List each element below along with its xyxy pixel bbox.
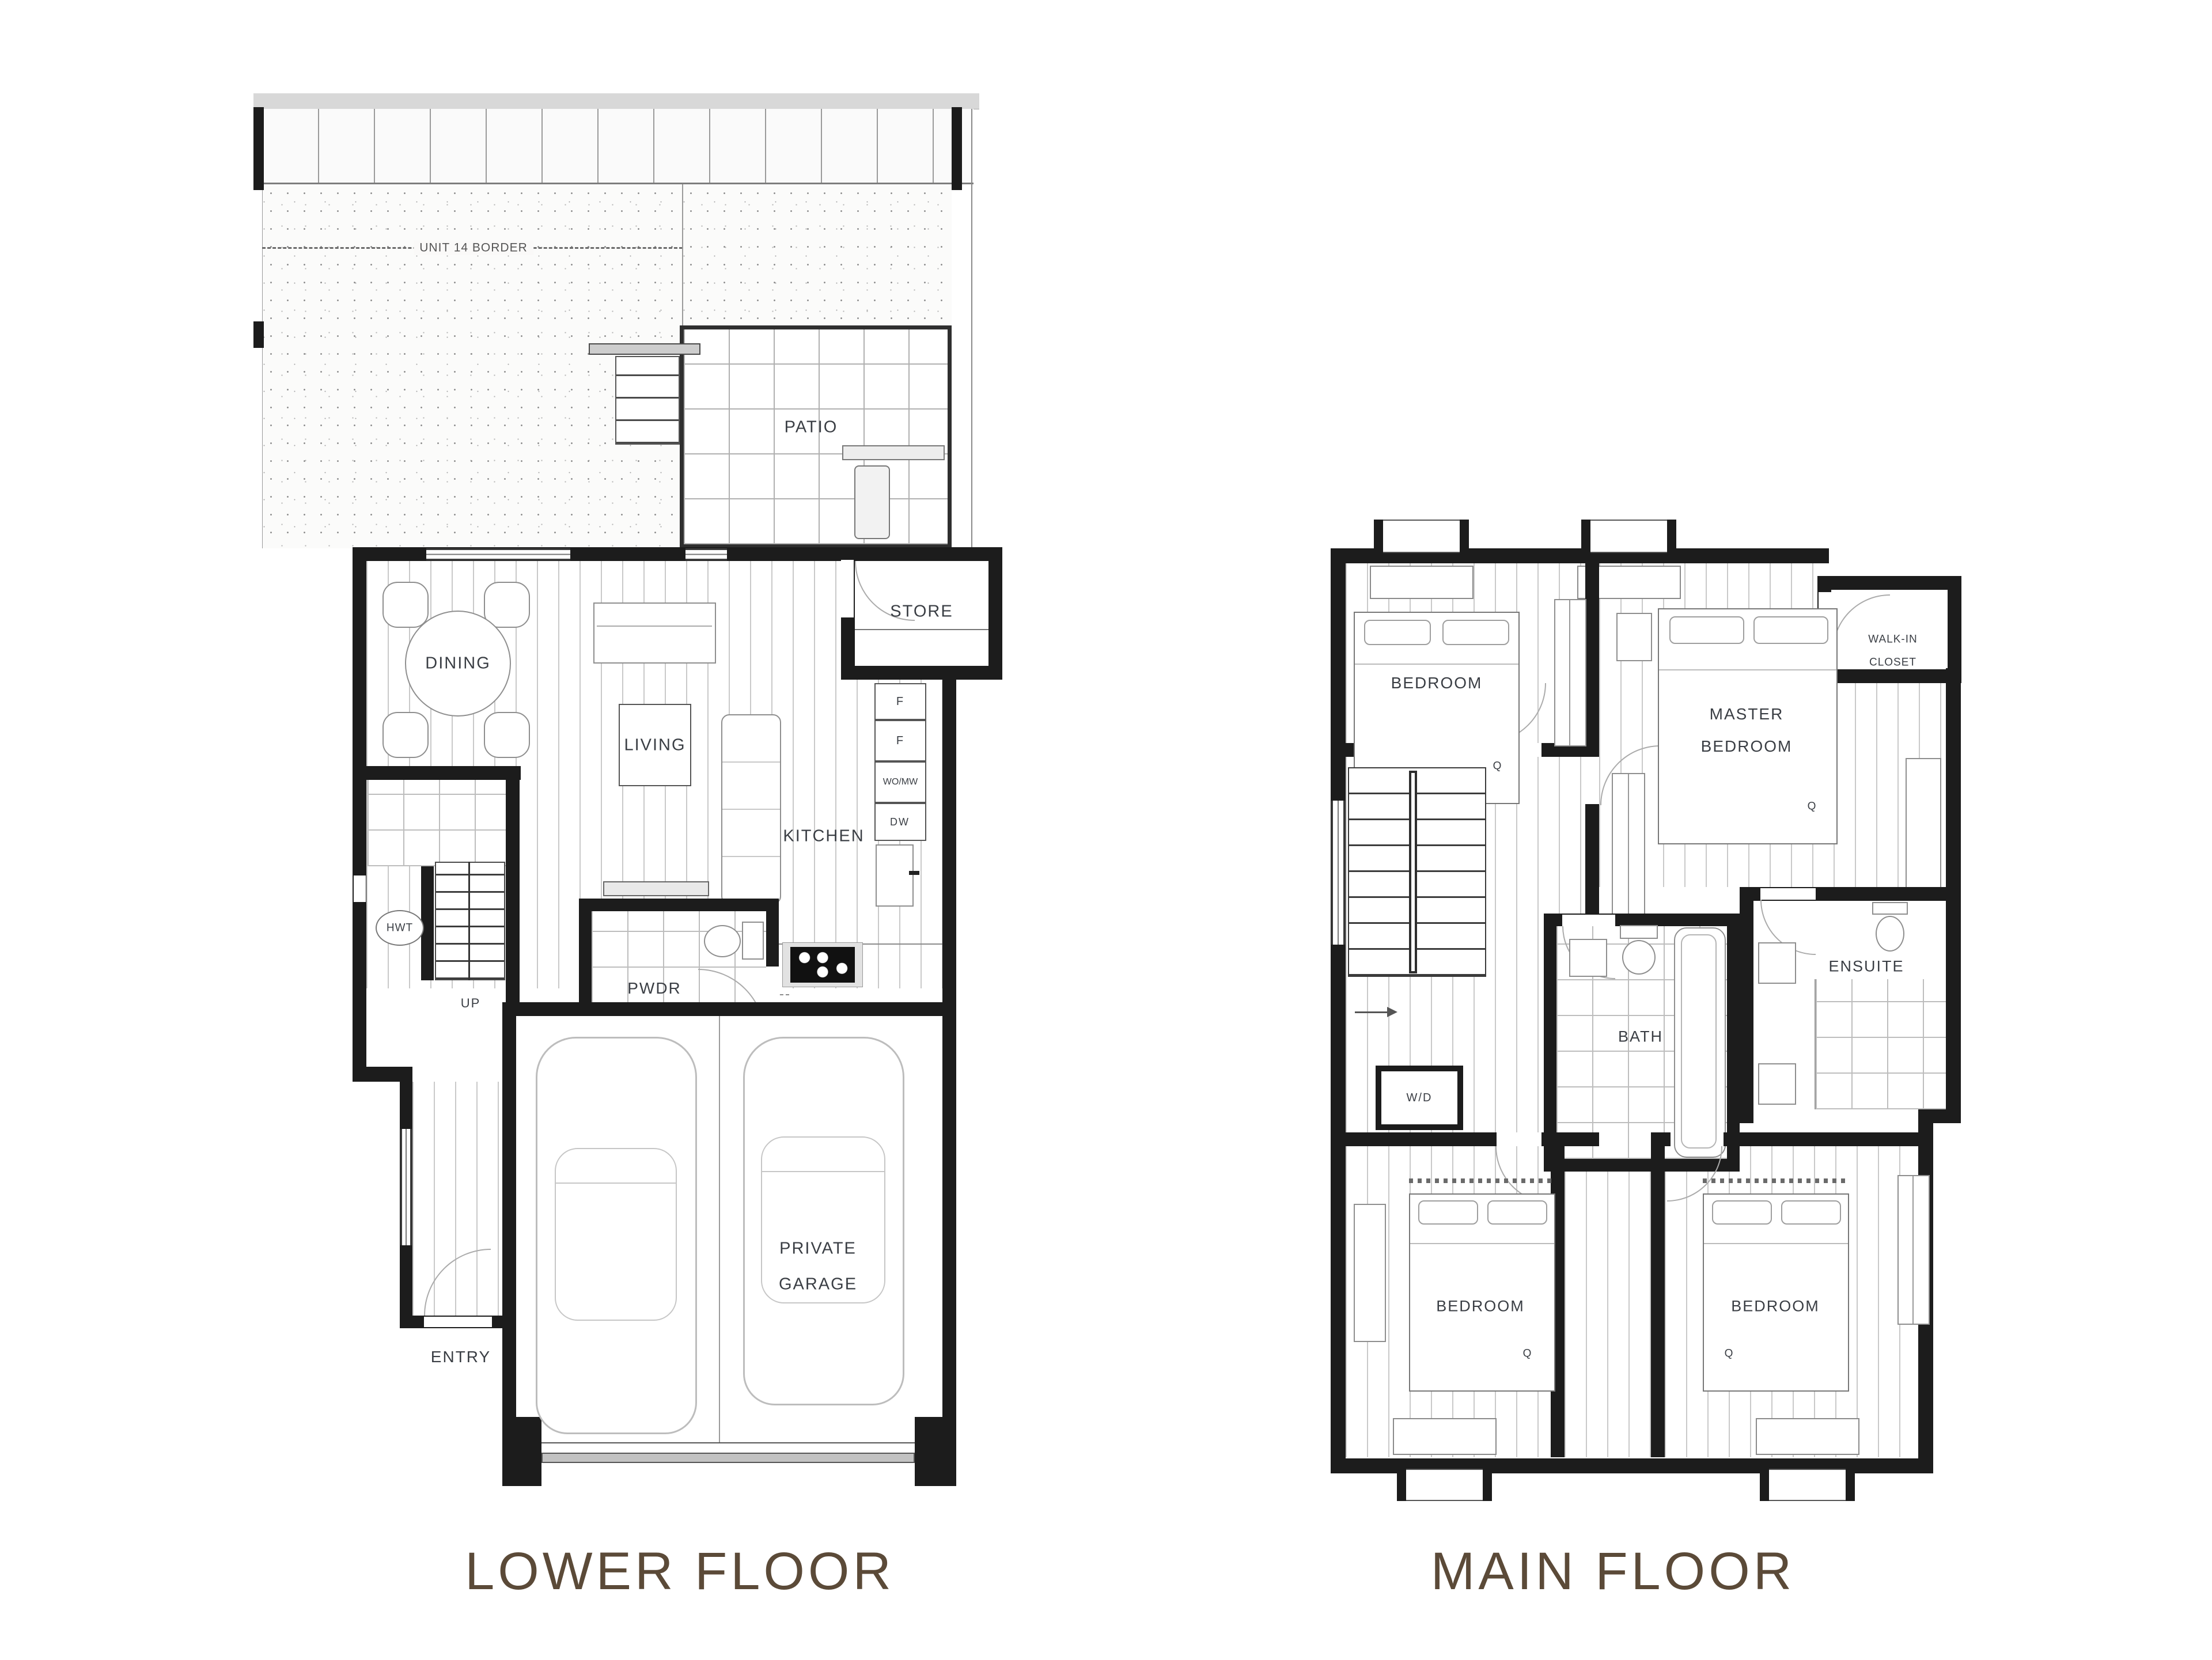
window-bay [1581,520,1676,553]
bath-sink [1569,939,1607,977]
wall-segment [253,107,264,190]
room-label-living: LIVING [624,737,685,754]
dining-chair [484,712,530,758]
kitchen-sink [876,844,914,907]
kitchen-island [603,881,709,896]
room-label-wic-line2: CLOSET [1869,657,1916,668]
room-label-master-line1: MASTER [1710,706,1784,722]
garage-bay-divider [719,1016,720,1442]
room-label-bedroom-br: BEDROOM [1731,1299,1820,1314]
door-opening [354,876,366,902]
stairs-up [435,862,505,980]
wall-segment [502,1417,541,1486]
erase-patch [1829,545,1961,577]
headboard-dotted [1703,1178,1849,1183]
window-bay [1374,520,1469,553]
closet [1612,773,1645,918]
entry-door-opening [424,1317,492,1327]
room-label-store: STORE [890,604,953,620]
tv-console-line [597,626,712,627]
tv-console [593,602,716,664]
bay-side [1846,1469,1855,1501]
wall-segment [1585,804,1599,914]
room-label-bedroom-bl: BEDROOM [1436,1299,1525,1314]
lower-floor-title: LOWER FLOOR [465,1541,895,1602]
bathtub [1674,927,1726,1158]
toilet-bowl [704,925,741,957]
room-label-master-line2: BEDROOM [1701,738,1793,755]
room-label-patio: PATIO [785,419,838,436]
label-dishwasher: DW [890,817,910,827]
dining-chair [382,582,429,628]
sofa [721,714,781,904]
label-wall-oven-microwave: WO/MW [883,778,918,787]
floor-plan-canvas: UNIT 14 BORDER PATIO STORE DINING [0,0,2212,1660]
label-up: UP [461,997,481,1010]
window [426,548,570,560]
bay-side [1483,1469,1492,1501]
wall-segment [1651,1132,1671,1146]
bed [1409,1193,1555,1392]
wall-segment [1541,1132,1599,1146]
window [400,1129,412,1245]
bay-side [1760,1469,1769,1501]
bed-size-q: Q [1725,1348,1734,1359]
room-label-dining: DINING [425,655,491,672]
stair-rail-inner [1411,773,1415,971]
car [743,1037,904,1405]
stair-arrow-line [1355,1011,1388,1013]
garage-opening-line [541,1442,915,1443]
room-label-powder: PWDR [627,980,681,996]
door-opening [841,560,854,617]
bay-side [1581,520,1590,553]
bed-size-q: Q [1523,1348,1533,1359]
window-bay [1397,1469,1492,1501]
toilet-tank [1872,902,1908,915]
room-label-entry: ENTRY [431,1349,491,1365]
headboard-dotted [1409,1178,1555,1183]
closet [1897,1175,1930,1325]
wall-segment [1740,887,1753,1123]
stairs-main [1348,767,1486,977]
wall-segment [952,107,962,190]
store-shelf-line [855,629,988,630]
car [536,1037,697,1434]
window-seat [1370,566,1474,599]
sink-faucet [909,871,919,875]
ensuite-shower-floor [1815,979,1946,1109]
bay-side [1667,520,1676,553]
bed-size-q: Q [1493,761,1503,772]
wall-segment [915,1417,956,1486]
dresser [1906,758,1941,888]
ensuite-sink [1758,942,1796,984]
car-line [555,1183,677,1184]
bay-side [1397,1469,1406,1501]
bay-side [1460,520,1469,553]
label-washer-dryer: W/D [1407,1092,1433,1104]
stair-arrow-head [1387,1007,1397,1017]
door-opening [1760,888,1816,900]
nightstand [1616,613,1652,661]
cooktop [790,947,855,983]
wall-segment [253,321,264,348]
door-opening [1562,915,1615,926]
wall-segment [1585,563,1599,744]
dining-chair [382,712,429,758]
room-label-ensuite: ENSUITE [1828,959,1904,975]
label-fridge-2: F [896,735,904,746]
main-floor-title: MAIN FLOOR [1431,1541,1795,1602]
site-boundary-line [971,109,972,548]
window [685,548,727,560]
room-label-garage-line1: PRIVATE [779,1241,857,1257]
bay-side [1374,520,1383,553]
stair-rail [468,862,470,980]
toilet-tank [742,922,764,960]
ensuite-sink [1758,1063,1796,1105]
patio-steps [615,356,680,445]
patio-bench [842,445,945,460]
stipple-ground-right [683,184,952,325]
patio-room [680,325,952,548]
room-label-bath: BATH [1618,1029,1663,1045]
wall-segment [1346,1132,1497,1146]
patio-planter [854,465,890,539]
toilet-bowl [1622,940,1656,975]
wall-segment [1651,1146,1665,1457]
site-line [682,184,683,325]
room-label-bedroom-top: BEDROOM [1391,675,1483,691]
label-fridge-1: F [896,696,904,707]
label-hwt: HWT [387,923,413,934]
room-label-wic-line1: WALK-IN [1868,634,1917,645]
wall-segment [1724,1132,1933,1146]
garage-door [541,1453,915,1463]
car-cabin [555,1148,677,1321]
window [1331,801,1345,945]
bed [1703,1193,1849,1392]
window-seat [1756,1418,1859,1455]
closet [1554,599,1586,746]
window-bay [1760,1469,1855,1501]
window-seat [1393,1418,1497,1455]
wall-segment [506,780,520,1002]
wall-segment [353,1067,412,1082]
patio-step-handrail [589,343,700,355]
entry-closet-floor [368,780,506,866]
unit-border-label: UNIT 14 BORDER [414,241,533,255]
room-label-garage-line2: GARAGE [779,1276,857,1293]
dresser [1354,1204,1386,1342]
room-label-kitchen: KITCHEN [783,828,864,845]
bed-size-q: Q [1808,801,1817,812]
yard-top-bar [253,93,979,109]
car-line [761,1171,885,1172]
toilet-bowl [1876,916,1904,952]
wall-segment [1918,1108,1961,1123]
wall-segment [354,766,521,780]
paver-strip [262,109,974,184]
toilet-tank [1620,925,1658,939]
dining-chair [484,582,530,628]
